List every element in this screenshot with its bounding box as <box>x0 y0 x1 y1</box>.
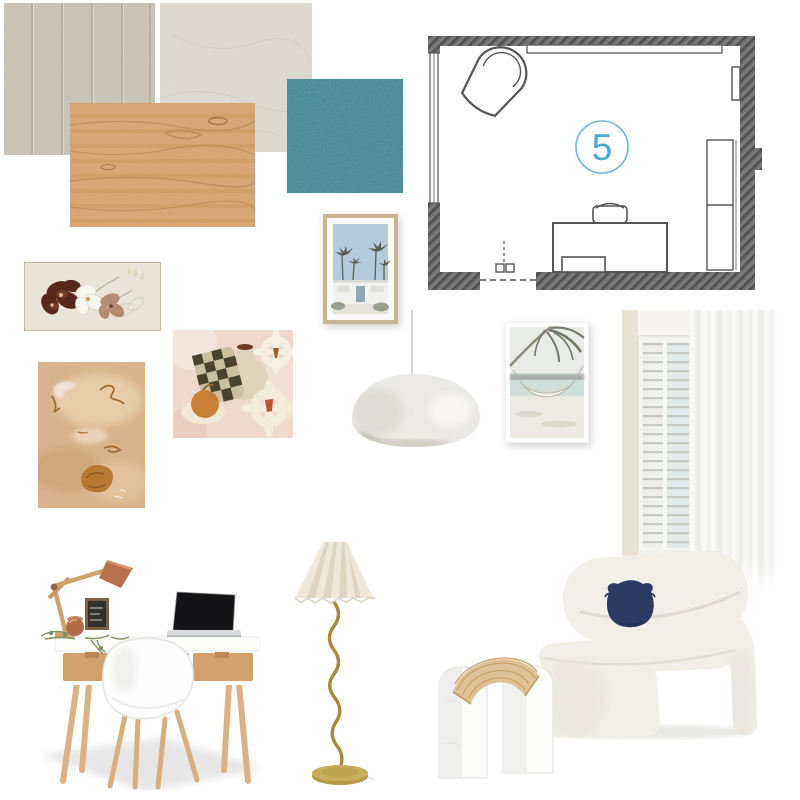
navy-cushion <box>605 580 655 627</box>
beige-abstract-print[interactable] <box>38 362 145 508</box>
lamp-base <box>312 765 375 785</box>
floorplan[interactable]: 5 <box>428 36 762 290</box>
wall-sliver <box>622 310 638 560</box>
plantation-shutters <box>638 336 694 560</box>
teal-carpet-swatch[interactable] <box>287 79 403 193</box>
window <box>428 53 440 203</box>
pleated-shade <box>295 542 375 603</box>
chalkboard-frame <box>85 598 109 630</box>
still-life-print[interactable] <box>173 330 293 438</box>
bulkhead <box>527 45 722 53</box>
copper-pot <box>66 616 84 636</box>
mood-board-canvas: 5 <box>0 0 800 800</box>
orchid-artwork[interactable] <box>24 262 161 331</box>
floor-lamp[interactable] <box>293 538 375 794</box>
orange <box>191 390 219 418</box>
floor-shadow <box>40 738 263 790</box>
room-number: 5 <box>592 127 613 168</box>
boucle-chair[interactable] <box>535 548 760 740</box>
chair-texture <box>535 548 760 740</box>
timber-swatch[interactable] <box>70 103 255 227</box>
print-photo <box>331 224 391 314</box>
wall-pier <box>755 148 762 170</box>
pendant-light[interactable] <box>350 308 482 452</box>
laptop <box>167 592 241 637</box>
hammock-print[interactable] <box>505 322 589 443</box>
pendant-shading <box>350 308 482 452</box>
marble-bookends[interactable] <box>437 648 555 785</box>
wavy-stem <box>330 602 342 768</box>
hammock-photo <box>510 327 584 438</box>
desk-setting[interactable] <box>25 540 270 790</box>
